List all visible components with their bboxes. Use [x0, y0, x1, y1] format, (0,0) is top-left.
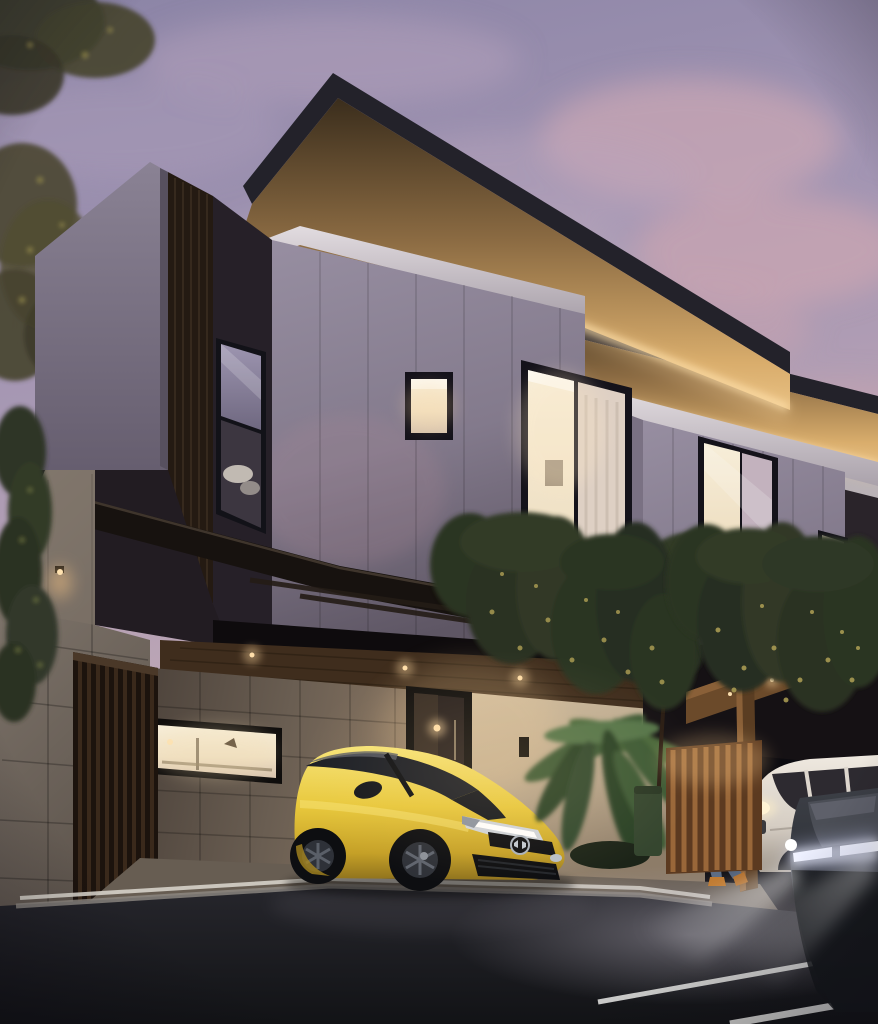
architectural-render — [0, 0, 878, 1024]
vignette — [0, 0, 878, 1024]
scene-canvas — [0, 0, 878, 1024]
